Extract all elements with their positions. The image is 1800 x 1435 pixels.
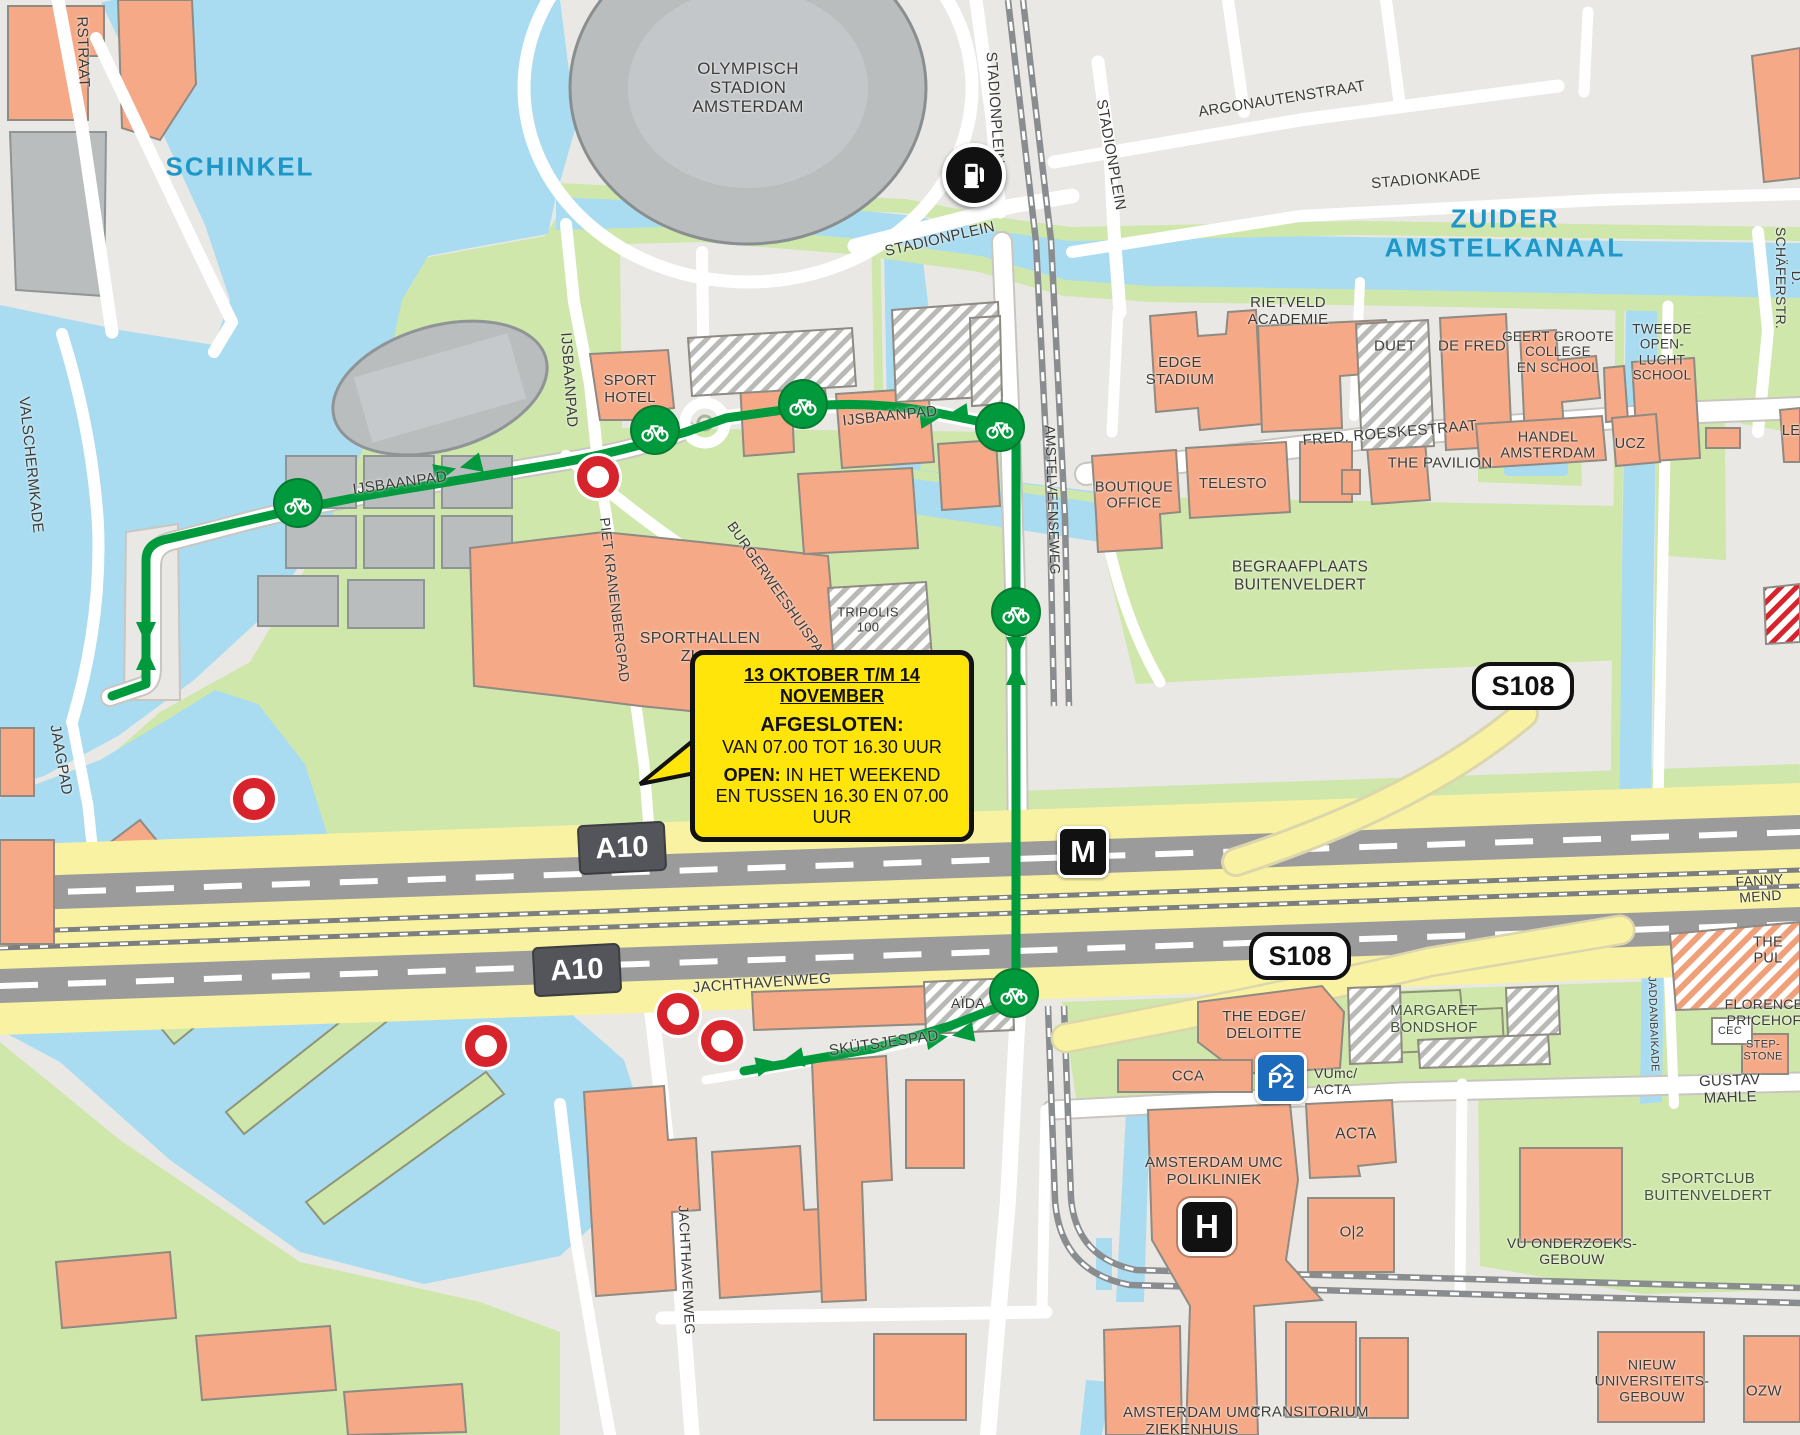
hospital-icon: H [1178, 1198, 1236, 1256]
street-label-gustav-mahlerlaan: GUSTAV MAHLE [1694, 1072, 1765, 1108]
place-label-tripolis: TRIPOLIS 100 [837, 605, 899, 634]
place-label-olympisch-stadion: OLYMPISCH STADION AMSTERDAM [692, 59, 803, 117]
place-label-the-pulse: THE PUL [1752, 935, 1784, 968]
place-label-margaret-bondshof: MARGARET BONDSHOF [1390, 1003, 1477, 1037]
place-label-vu-onderzoeksgebouw: VU ONDERZOEKS- GEBOUW [1507, 1236, 1637, 1268]
place-label-umc-ziekenhuis: AMSTERDAM UMC ZIEKENHUIS [1123, 1405, 1261, 1435]
place-label-lev: LEV [1782, 423, 1800, 439]
closure-notice-callout: 13 OKTOBER T/M 14 NOVEMBER AFGESLOTEN: V… [690, 650, 974, 842]
road-closure-icon [465, 1025, 507, 1067]
place-label-rietveld-academie: RIETVELD ACADEMIE [1248, 295, 1329, 329]
closed-heading: AFGESLOTEN: [703, 714, 961, 737]
bike-route-icon [275, 480, 321, 526]
place-label-nieuw-universiteitsgebouw: NIEUW UNIVERSITEITS- GEBOUW [1595, 1357, 1710, 1404]
road-closure-icon [657, 993, 699, 1035]
covered-parking-p2-icon: P2 [1255, 1052, 1307, 1104]
s108-road-badge: S108 [1249, 932, 1351, 980]
place-label-de-fred: DE FRED [1438, 339, 1506, 356]
bike-route-icon [780, 381, 826, 427]
place-label-tweede-openlucht: TWEEDE OPEN- LUCHT SCHOOL [1632, 322, 1692, 383]
place-label-cca: CCA [1172, 1069, 1205, 1086]
place-label-sportclub-buitenveldert: SPORTCLUB BUITENVELDERT [1644, 1171, 1772, 1205]
closed-hours: VAN 07.00 TOT 16.30 UUR [703, 737, 961, 758]
place-label-the-pavilion: THE PAVILION [1388, 456, 1493, 473]
place-label-cec: CEC [1718, 1025, 1742, 1037]
place-label-aida: AÏDA [951, 996, 985, 1012]
open-hours: EN TUSSEN 16.30 EN 07.00 UUR [703, 786, 961, 828]
a10-road-badge: A10 [532, 943, 622, 998]
street-label-rstraat: RSTRAAT [72, 16, 91, 88]
place-label-vumc-acta: VUmc/ ACTA [1314, 1066, 1358, 1098]
place-label-duet: DUET [1374, 339, 1416, 356]
map-canvas: SCHINKEL ZUIDER AMSTELKANAAL RSTRAAT VAL… [0, 0, 1800, 1435]
place-label-telesto: TELESTO [1199, 476, 1267, 492]
bike-route-icon [977, 404, 1023, 450]
street-label-fanny-mendelssohn: FANNY MEND [1735, 872, 1785, 907]
place-label-geert-groote: GEERT GROOTE COLLEGE EN SCHOOL [1502, 329, 1614, 375]
place-label-o2: O|2 [1340, 1225, 1365, 1242]
place-label-step-stone: STEP- STONE [1743, 1039, 1782, 1064]
a10-road-badge: A10 [577, 821, 667, 876]
bike-route-icon [632, 407, 678, 453]
place-label-umc-polikliniek: AMSTERDAM UMC POLIKLINIEK [1145, 1155, 1283, 1189]
place-label-ozw: OZW [1746, 1384, 1782, 1401]
place-label-the-edge-deloitte: THE EDGE/ DELOITTE [1222, 1009, 1306, 1043]
place-label-sport-hotel: SPORT HOTEL [604, 373, 657, 407]
bike-route-icon [991, 970, 1037, 1016]
place-label-boutique-office: BOUTIQUE OFFICE [1095, 480, 1173, 513]
place-label-ucz: UCZ [1615, 436, 1646, 452]
place-label-edge-stadium: EDGE STADIUM [1146, 355, 1215, 389]
water-label-zuider-amstelkanaal: ZUIDER AMSTELKANAAL [1358, 205, 1653, 264]
place-label-handel-amsterdam: HANDEL AMSTERDAM [1500, 430, 1595, 463]
bike-route-icon [993, 589, 1039, 635]
fuel-station-icon [942, 143, 1006, 207]
s108-road-badge: S108 [1472, 662, 1574, 710]
place-label-begraafplaats: BEGRAAFPLAATS BUITENVELDERT [1232, 559, 1368, 594]
road-closure-icon [233, 778, 275, 820]
place-label-transitorium: TRANSITORIUM [1251, 1405, 1369, 1422]
place-label-acta: ACTA [1335, 1125, 1376, 1143]
metro-station-icon: M [1057, 826, 1109, 878]
closure-period: 13 OKTOBER T/M 14 NOVEMBER [703, 665, 961, 707]
street-label-d-schaferstraat: D. SCHÄFERSTR. [1772, 227, 1800, 329]
water-label-schinkel: SCHINKEL [166, 152, 315, 181]
road-closure-icon [577, 456, 619, 498]
road-closure-icon [701, 1020, 743, 1062]
open-info: OPEN: IN HET WEEKEND [703, 765, 961, 786]
